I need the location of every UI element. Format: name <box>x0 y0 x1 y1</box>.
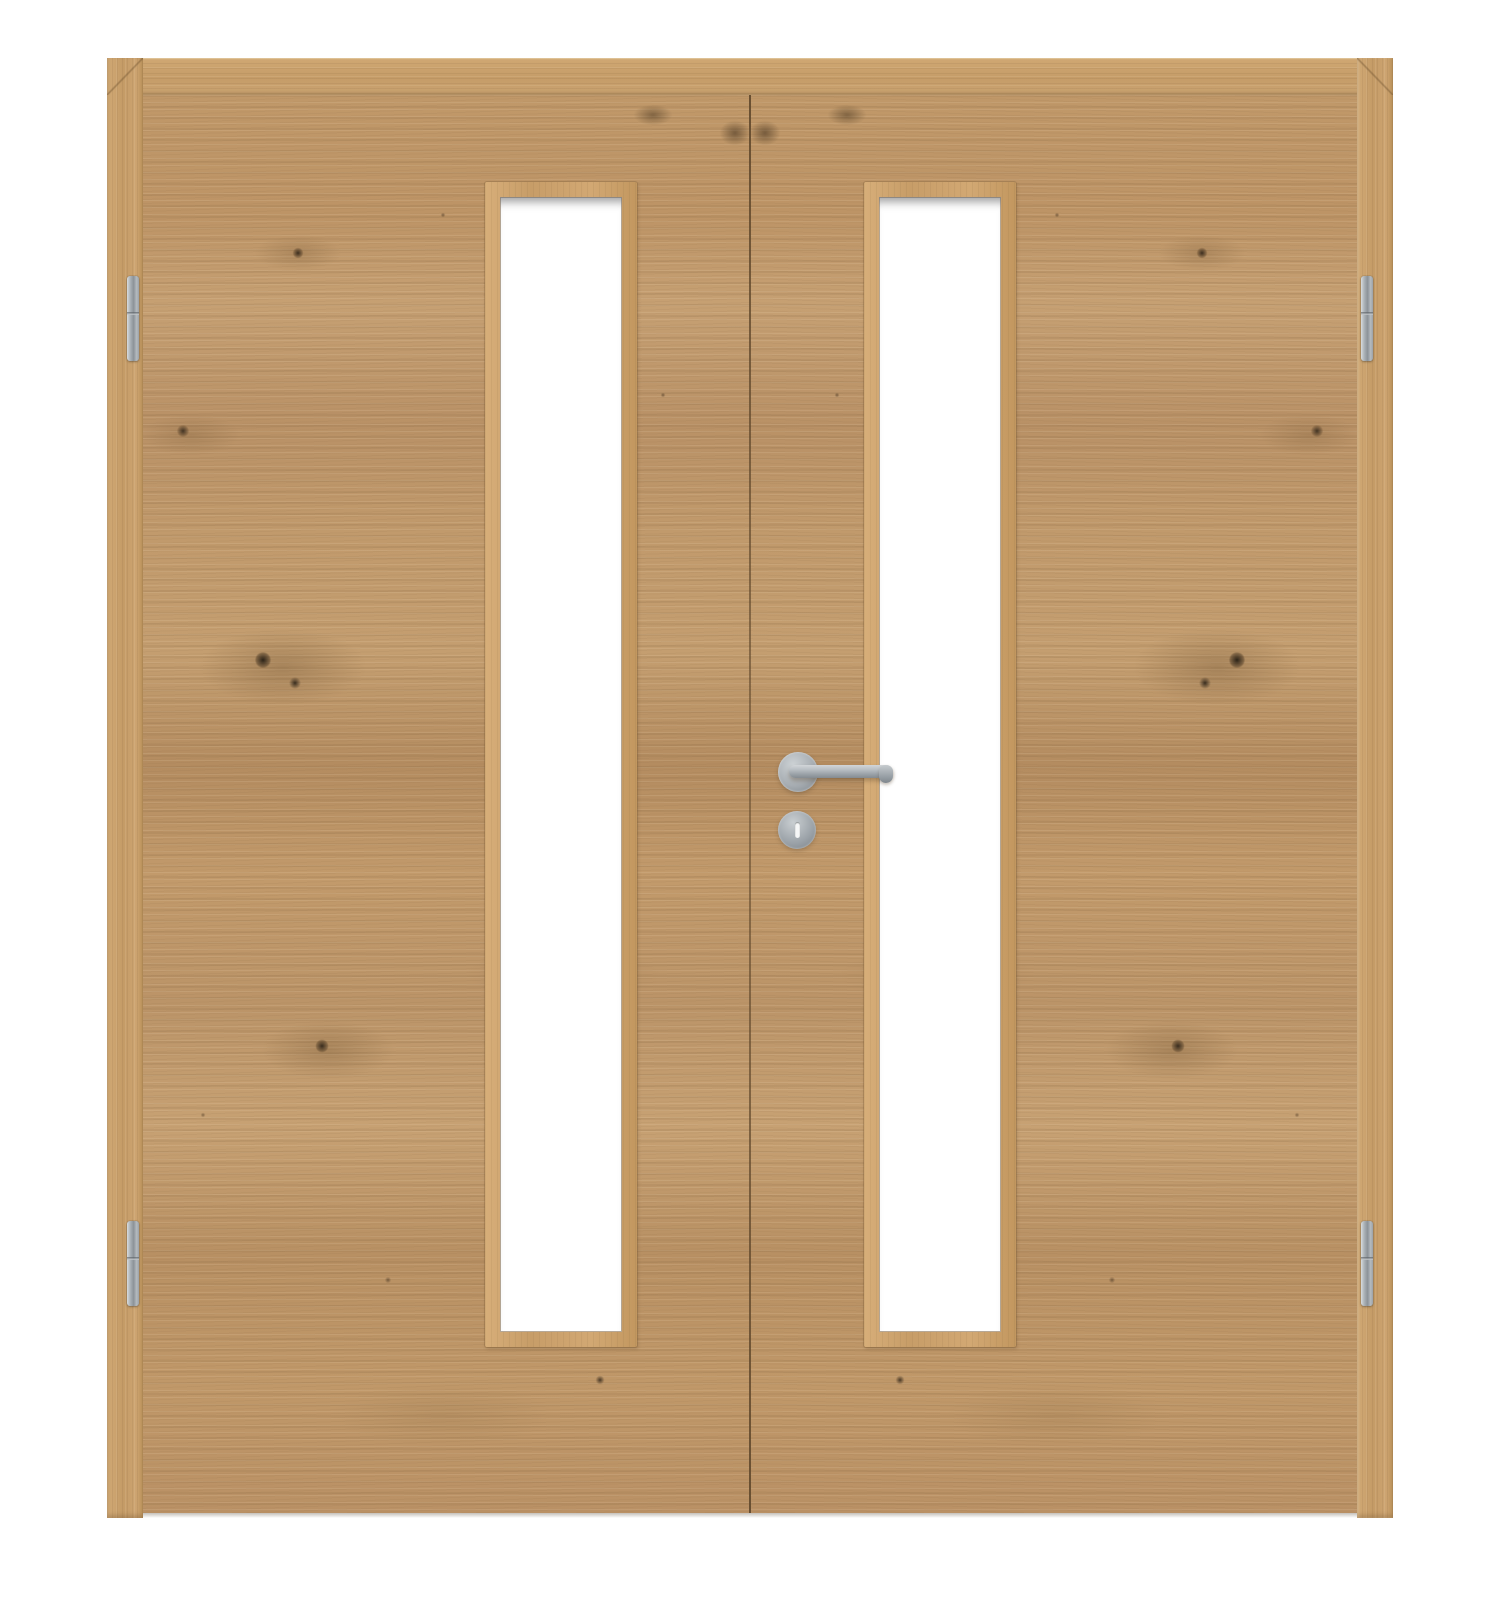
door-frame-head <box>107 58 1393 95</box>
door-leaf-right <box>750 95 1357 1513</box>
door-handle-lever-end <box>879 765 893 783</box>
door-handle-lever <box>789 765 893 778</box>
hinge-bottom-left <box>127 1221 139 1306</box>
hinge-top-left <box>127 276 139 361</box>
hinge-bottom-right <box>1361 1221 1373 1306</box>
glass-panel-left <box>485 182 637 1347</box>
hinge-top-right <box>1361 276 1373 361</box>
door-bottom-shadow <box>143 1513 1357 1518</box>
door-leaves-meeting-gap <box>749 95 751 1513</box>
escutcheon-slot <box>795 822 800 838</box>
glass-pane-right <box>879 197 1001 1332</box>
double-door-product-image <box>0 0 1500 1617</box>
escutcheon <box>778 811 816 849</box>
glass-pane-left <box>500 197 622 1332</box>
door-leaf-left <box>143 95 750 1513</box>
